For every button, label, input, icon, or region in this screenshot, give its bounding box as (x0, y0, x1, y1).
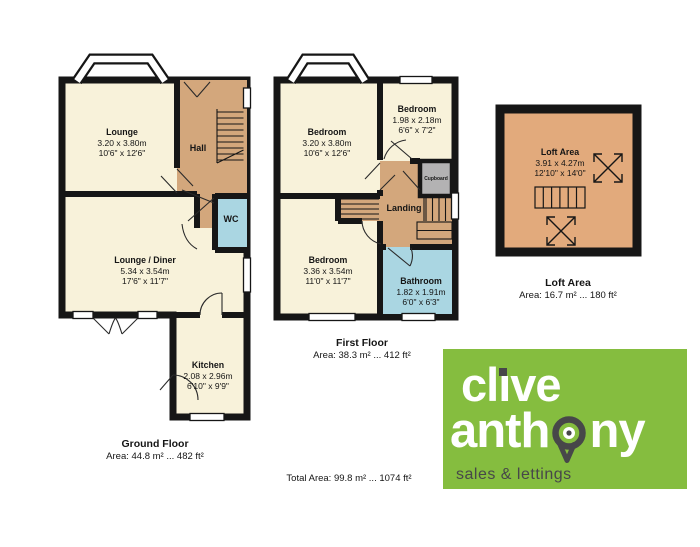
room-dim-m: 3.20 x 3.80m (97, 138, 146, 149)
agency-logo: clıve anth ny sales & lettings (443, 349, 687, 489)
i-dot (499, 368, 507, 376)
label-bathroom: Bathroom 1.82 x 1.91m 6'0" x 6'3" (396, 276, 445, 308)
room-dim-ft: 10'6" x 12'6" (97, 148, 146, 159)
room-name: Bathroom (396, 276, 445, 287)
room-name: Bedroom (303, 255, 352, 266)
label-loft-area: Loft Area 3.91 x 4.27m 12'10" x 14'0" (534, 147, 585, 179)
room-dim-m: 2.08 x 2.96m (183, 371, 232, 382)
label-cupboard: Cupboard (424, 174, 448, 185)
room-dim-ft: 10'6" x 12'6" (302, 148, 351, 159)
room-dim-ft: 17'6" x 11'7" (114, 276, 176, 287)
room-dim-m: 5.34 x 3.54m (114, 266, 176, 277)
logo-tagline: sales & lettings (456, 465, 687, 484)
logo-word-anthony: anth ny (450, 408, 687, 464)
label-lounge-diner: Lounge / Diner 5.34 x 3.54m 17'6" x 11'7… (114, 255, 176, 287)
room-dim-m: 1.98 x 2.18m (392, 115, 441, 126)
label-wc: WC (224, 214, 239, 225)
logo-letter-i: ı (498, 362, 510, 408)
label-hall: Hall (190, 143, 207, 154)
loft-plan (500, 109, 637, 252)
floor-title: Ground Floor (106, 438, 204, 450)
ground-floor-caption: Ground Floor Area: 44.8 m² ... 482 ft² (106, 438, 204, 462)
floor-area: Area: 38.3 m² ... 412 ft² (313, 350, 411, 361)
floor-title: First Floor (313, 337, 411, 349)
room-dim-ft: 6'10" x 9'9" (183, 381, 232, 392)
room-dim-m: 1.82 x 1.91m (396, 287, 445, 298)
logo-text: anth (450, 408, 549, 454)
room-name: Bedroom (392, 104, 441, 115)
room-dim-ft: 6'6" x 7'2" (392, 125, 441, 136)
room-name: Loft Area (534, 147, 585, 158)
room-name: Lounge (97, 127, 146, 138)
first-floor-caption: First Floor Area: 38.3 m² ... 412 ft² (313, 337, 411, 361)
room-dim-m: 3.36 x 3.54m (303, 266, 352, 277)
room-dim-ft: 6'0" x 6'3" (396, 297, 445, 308)
room-dim-ft: 12'10" x 14'0" (534, 168, 585, 179)
floor-area: Area: 16.7 m² ... 180 ft² (519, 290, 617, 301)
loft-outline (500, 109, 637, 252)
total-area-caption: Total Area: 99.8 m² ... 1074 ft² (286, 473, 411, 484)
room-dim-m: 3.91 x 4.27m (534, 158, 585, 169)
floor-area: Area: 44.8 m² ... 482 ft² (106, 451, 204, 462)
logo-text: ı (498, 358, 510, 411)
label-bedroom-2: Bedroom 1.98 x 2.18m 6'6" x 7'2" (392, 104, 441, 136)
room-name: Bedroom (302, 127, 351, 138)
label-bedroom-3: Bedroom 3.36 x 3.54m 11'0" x 11'7" (303, 255, 352, 287)
floor-title: Loft Area (519, 277, 617, 289)
room-name: Kitchen (183, 360, 232, 371)
logo-text: ny (589, 408, 644, 454)
label-landing: Landing (387, 203, 422, 214)
label-bedroom-1: Bedroom 3.20 x 3.80m 10'6" x 12'6" (302, 127, 351, 159)
loft-caption: Loft Area Area: 16.7 m² ... 180 ft² (519, 277, 617, 301)
room-dim-ft: 11'0" x 11'7" (303, 276, 352, 287)
room-name: Lounge / Diner (114, 255, 176, 266)
room-dim-m: 3.20 x 3.80m (302, 138, 351, 149)
floorplan-page: Lounge 3.20 x 3.80m 10'6" x 12'6" Hall W… (0, 0, 700, 547)
logo-word-clive: clıve (461, 362, 687, 408)
location-pin-icon (550, 414, 588, 464)
label-lounge: Lounge 3.20 x 3.80m 10'6" x 12'6" (97, 127, 146, 159)
label-kitchen: Kitchen 2.08 x 2.96m 6'10" x 9'9" (183, 360, 232, 392)
